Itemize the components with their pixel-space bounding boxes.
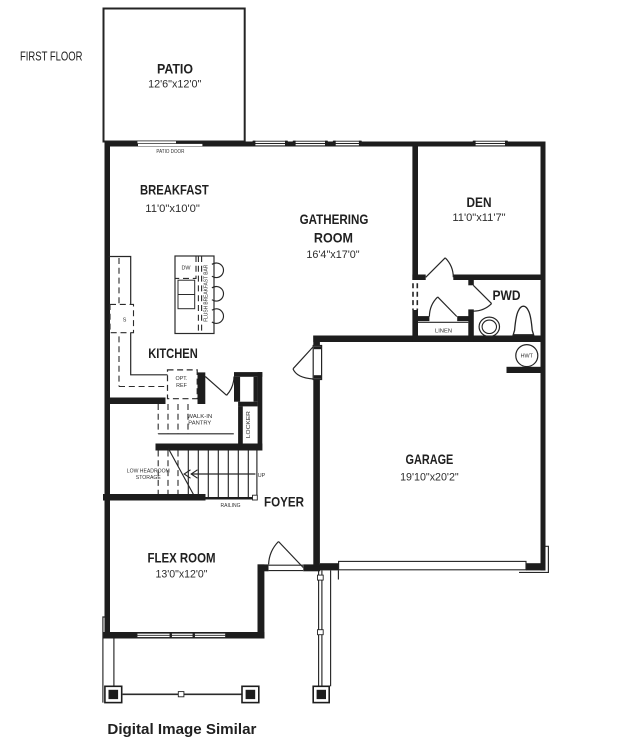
svg-text:PATIO DOOR: PATIO DOOR (156, 149, 184, 155)
svg-text:16'4"x17'0": 16'4"x17'0" (306, 249, 359, 261)
svg-text:PWD: PWD (493, 287, 521, 303)
svg-text:FOYER: FOYER (264, 494, 304, 510)
svg-text:UP: UP (258, 473, 266, 479)
svg-text:STORAGE: STORAGE (136, 475, 161, 481)
svg-text:GARAGE: GARAGE (406, 451, 454, 467)
svg-text:OPT.: OPT. (176, 376, 188, 382)
svg-text:LINEN: LINEN (435, 328, 452, 334)
svg-text:12'6"x12'0": 12'6"x12'0" (148, 79, 201, 91)
svg-text:GATHERING: GATHERING (300, 211, 369, 227)
svg-text:FLEX ROOM: FLEX ROOM (148, 550, 216, 566)
svg-text:11'0"x10'0": 11'0"x10'0" (145, 203, 200, 215)
svg-text:HWT: HWT (521, 354, 534, 360)
svg-text:S: S (123, 317, 127, 323)
svg-text:13'0"x12'0": 13'0"x12'0" (156, 568, 208, 580)
svg-text:REF: REF (176, 383, 187, 389)
svg-text:FLUSH BREAKFAST BAR: FLUSH BREAKFAST BAR (204, 265, 210, 322)
svg-text:RAILING: RAILING (221, 503, 241, 509)
svg-text:DEN: DEN (467, 194, 492, 210)
svg-text:PANTRY: PANTRY (188, 420, 211, 426)
svg-text:FIRST FLOOR: FIRST FLOOR (20, 50, 83, 64)
svg-text:LOW HEADROOM: LOW HEADROOM (127, 468, 170, 474)
svg-text:19'10"x20'2": 19'10"x20'2" (400, 472, 459, 484)
svg-text:BREAKFAST: BREAKFAST (140, 181, 209, 197)
svg-text:WALK-IN: WALK-IN (187, 414, 212, 420)
svg-text:DW: DW (182, 266, 192, 272)
svg-text:ROOM: ROOM (314, 229, 353, 245)
svg-text:Digital Image Similar: Digital Image Similar (107, 721, 256, 738)
svg-text:PATIO: PATIO (157, 61, 193, 77)
svg-text:KITCHEN: KITCHEN (148, 345, 198, 361)
svg-text:11'0"x11'7": 11'0"x11'7" (452, 212, 505, 224)
svg-text:LOCKER: LOCKER (246, 411, 252, 438)
